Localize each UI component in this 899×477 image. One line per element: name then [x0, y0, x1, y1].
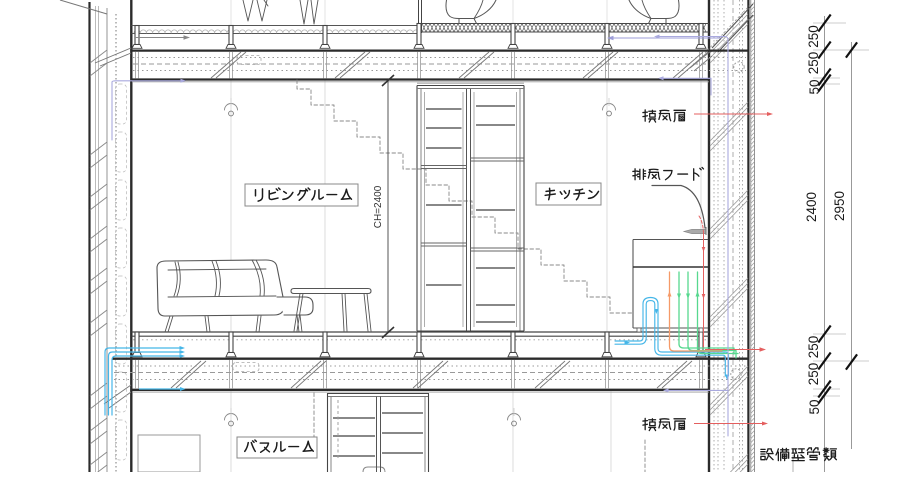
svg-text:250: 250: [806, 336, 821, 359]
svg-text:250: 250: [806, 52, 821, 75]
svg-text:2950: 2950: [832, 191, 847, 221]
svg-text:250: 250: [806, 25, 821, 48]
svg-text:2400: 2400: [804, 192, 819, 222]
svg-text:50: 50: [807, 79, 822, 94]
svg-text:CH=2400: CH=2400: [373, 185, 384, 228]
svg-text:50: 50: [807, 399, 822, 414]
svg-text:250: 250: [806, 363, 821, 386]
